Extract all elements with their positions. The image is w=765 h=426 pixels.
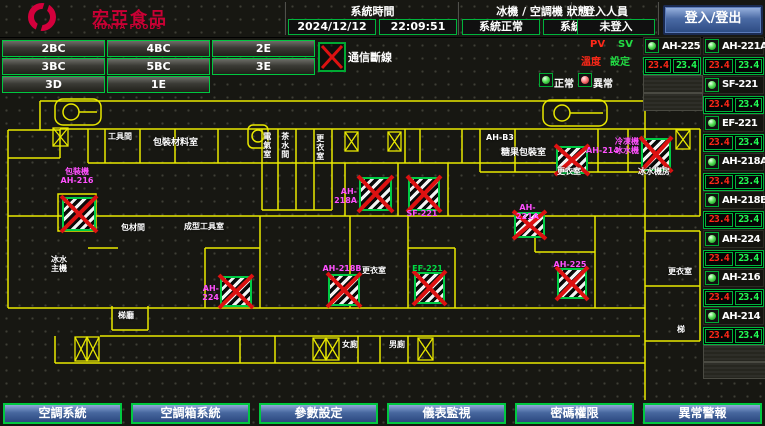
login-status-value: 未登入 (577, 19, 655, 35)
empty-panel (643, 75, 703, 93)
unit-EF-221[interactable]: EF-22123.423.4 (703, 114, 764, 152)
unit-name: AH-216 (722, 272, 760, 283)
pv-label: PV (590, 39, 605, 50)
floor-button-4bc[interactable]: 4BC (107, 40, 210, 57)
room-label: 成型工具室 (184, 223, 232, 232)
unit-led-icon (705, 39, 719, 53)
unit-name: AH-214 (722, 311, 760, 322)
unit-values: 23.423.4 (703, 327, 764, 345)
comm-lost-marker-AH-225[interactable] (557, 268, 587, 299)
floor-button-2e[interactable]: 2E (212, 40, 315, 57)
sv-value: 23.4 (735, 59, 763, 73)
unit-name: AH-218A (722, 156, 765, 167)
sv-value: 23.4 (673, 59, 699, 73)
marker-label-AH-224: AH-224 (192, 284, 219, 302)
comm-lost-icon (318, 42, 346, 72)
unit-AH-224[interactable]: AH-22423.423.4 (703, 230, 764, 268)
room-label: 男廁 (389, 341, 407, 350)
unit-led-icon (705, 193, 719, 207)
nav-button-0[interactable]: 空調系統 (3, 403, 122, 424)
pv-value: 23.4 (705, 213, 733, 227)
login-logout-button[interactable]: 登入/登出 (663, 5, 763, 35)
header-bar: 宏亞食品 HUNYA FOODS 系統時間 2024/12/12 22:09:5… (0, 0, 765, 38)
empty-panel (643, 93, 703, 111)
unit-name: EF-221 (722, 118, 757, 129)
pv-value: 23.4 (705, 59, 733, 73)
unit-led-icon (705, 271, 719, 285)
room-label: 更衣室 (315, 134, 324, 161)
comm-lost-marker-AH-218B[interactable] (328, 274, 360, 306)
chiller-status-value: 系統正常 (462, 19, 540, 35)
pv-value: 23.4 (705, 175, 733, 189)
pv-value: 23.4 (705, 98, 733, 112)
divider (457, 2, 459, 35)
normal-legend-label: 正常 (554, 75, 574, 90)
unit-AH-218B[interactable]: AH-218B23.423.4 (703, 191, 764, 229)
unit-name: SF-221 (722, 79, 758, 90)
marker-label-AH-216: 包裝機 AH-216 (52, 167, 102, 185)
room-label: 女廁 (342, 341, 360, 350)
room-label: 電氣室 (262, 132, 271, 159)
login-user-label: 登入人員 (575, 3, 637, 19)
floor-button-3bc[interactable]: 3BC (2, 58, 105, 75)
unit-values: 23.423.4 (703, 96, 764, 114)
comm-lost-marker-AH-216[interactable] (62, 197, 96, 231)
empty-panel (703, 345, 765, 362)
unit-led-icon (705, 232, 719, 246)
pv-value: 23.4 (705, 291, 733, 305)
sv-value: 23.4 (735, 213, 763, 227)
temp-label: 溫度 (581, 53, 601, 68)
unit-values: 23.423.4 (703, 250, 764, 268)
hunya-logo-icon (28, 3, 56, 31)
floor-button-2bc[interactable]: 2BC (2, 40, 105, 57)
room-label: AH-B3 (486, 134, 514, 143)
room-label: 工具間 (108, 133, 132, 142)
room-label: 更衣室 (557, 168, 585, 177)
unit-AH-214[interactable]: AH-21423.423.4 (703, 307, 764, 345)
unit-values: 23.423.4 (703, 211, 764, 229)
nav-button-3[interactable]: 儀表監視 (387, 403, 506, 424)
marker-label-SF-221: SF-221 (404, 209, 440, 218)
empty-panel (703, 362, 765, 379)
comm-lost-label: 通信斷線 (348, 49, 392, 65)
unit-name: AH-218B (722, 195, 765, 206)
abnormal-legend-label: 異常 (593, 75, 613, 90)
system-time-value: 22:09:51 (379, 19, 457, 35)
room-label: 茶水間 (280, 132, 289, 159)
sv-value: 23.4 (735, 175, 763, 189)
unit-values: 23.423.4 (703, 134, 764, 152)
unit-AH-216[interactable]: AH-21623.423.4 (703, 269, 764, 307)
unit-led-icon (705, 78, 719, 92)
room-label: 梯 (677, 326, 687, 335)
unit-values: 23.423.4 (703, 173, 764, 191)
sv-value: 23.4 (735, 329, 763, 343)
unit-values: 23.423.4 (703, 57, 764, 75)
marker-label-AH-225: AH-225 (553, 260, 587, 269)
sv-value: 23.4 (735, 291, 763, 305)
marker-label-冰水機: 冷凍機 冰水機 (612, 137, 639, 155)
system-date-value: 2024/12/12 (288, 19, 376, 35)
logo-subtitle: HUNYA FOODS (94, 23, 162, 31)
room-label: 梯廳 (118, 312, 136, 321)
unit-AH-225[interactable]: AH-22523.423.4 (643, 37, 701, 75)
abnormal-led-icon (578, 73, 592, 87)
floor-button-5bc[interactable]: 5BC (107, 58, 210, 75)
unit-values: 23.423.4 (643, 57, 701, 75)
sv-value: 23.4 (735, 136, 763, 150)
unit-led-icon (705, 116, 719, 130)
sv-value: 23.4 (735, 252, 763, 266)
scada-screen: 宏亞食品 HUNYA FOODS 系統時間 2024/12/12 22:09:5… (0, 0, 765, 426)
comm-lost-marker-AH-224[interactable] (220, 276, 252, 307)
unit-led-icon (645, 39, 659, 53)
floor-button-3e[interactable]: 3E (212, 58, 315, 75)
sv-label: SV (618, 39, 633, 50)
normal-led-icon (539, 73, 553, 87)
comm-lost-marker-EF-221[interactable] (414, 272, 445, 304)
room-label: 更衣室 (362, 267, 388, 276)
unit-values: 23.423.4 (703, 289, 764, 307)
unit-name: AH-225 (662, 41, 700, 52)
floor-button-3d[interactable]: 3D (2, 76, 105, 93)
unit-AH-218A[interactable]: AH-218A23.423.4 (703, 153, 764, 191)
pv-value: 23.4 (705, 136, 733, 150)
marker-label-AH-221A: AH-221A (508, 203, 547, 221)
room-label: 糖果包裝室 (501, 149, 555, 159)
room-label: 更衣室 (668, 268, 694, 277)
system-time-label: 系統時間 (290, 3, 455, 19)
nav-button-4[interactable]: 密碼權限 (515, 403, 634, 424)
unit-name: AH-224 (722, 234, 760, 245)
nav-button-1[interactable]: 空調箱系統 (131, 403, 250, 424)
room-label: 包裝材料室 (153, 139, 209, 149)
unit-SF-221[interactable]: SF-22123.423.4 (703, 76, 764, 114)
unit-led-icon (705, 309, 719, 323)
marker-label-AH-218A: AH-218A (322, 187, 357, 205)
marker-label-EF-221: EF-221 (412, 264, 443, 273)
setpoint-label: 設定 (610, 53, 630, 68)
comm-lost-marker-SF-221[interactable] (408, 177, 440, 211)
divider (284, 2, 286, 35)
unit-led-icon (705, 155, 719, 169)
nav-button-2[interactable]: 參數設定 (259, 403, 378, 424)
unit-AH-221A[interactable]: AH-221A23.423.4 (703, 37, 764, 75)
sv-value: 23.4 (735, 98, 763, 112)
divider (657, 2, 659, 35)
floor-button-1e[interactable]: 1E (107, 76, 210, 93)
room-label: 包材間 (121, 224, 147, 233)
pv-value: 23.4 (705, 252, 733, 266)
nav-button-5[interactable]: 異常警報 (643, 403, 762, 424)
room-label: 冰水機房 (638, 168, 672, 177)
pv-value: 23.4 (645, 59, 671, 73)
comm-lost-marker-AH-218A[interactable] (359, 177, 392, 211)
marker-label-AH-218B: AH-218B (322, 264, 362, 273)
unit-name: AH-221A (722, 41, 765, 52)
pv-value: 23.4 (705, 329, 733, 343)
room-label: 冰水 主機 (51, 256, 69, 274)
